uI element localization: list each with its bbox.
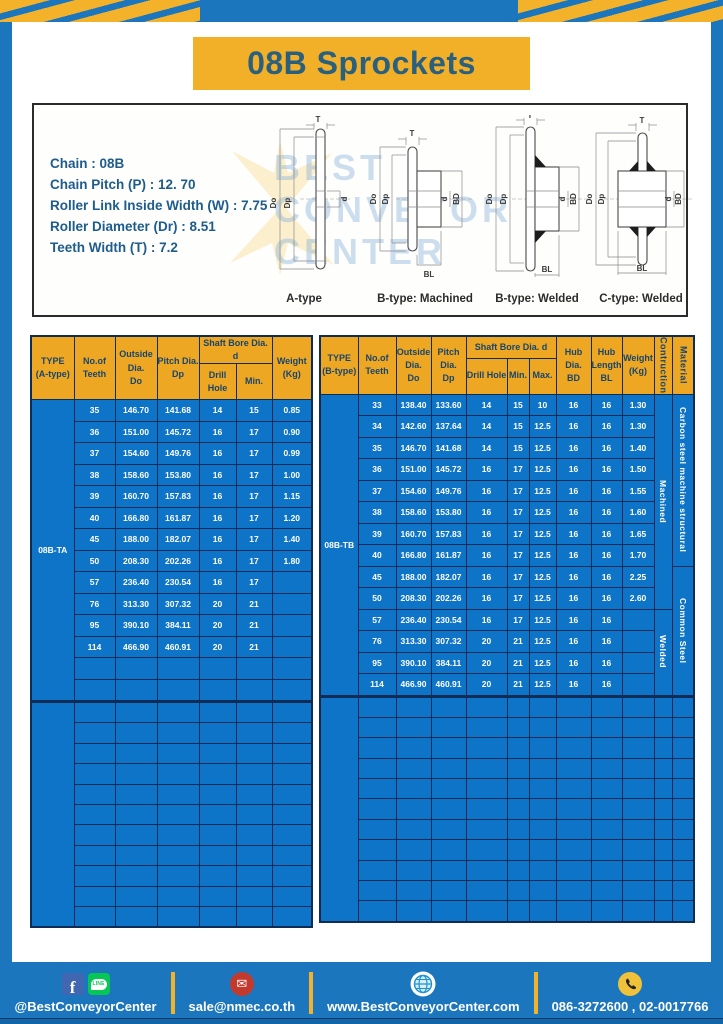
table-cell: 1.50 [622, 459, 654, 481]
table-row [31, 679, 312, 702]
table-cell: 460.91 [431, 674, 466, 697]
table-cell: 313.30 [396, 631, 431, 653]
table-cell [31, 702, 74, 928]
table-cell [396, 860, 431, 880]
table-cell [358, 758, 396, 778]
table-cell: 20 [466, 652, 507, 674]
table-cell [529, 840, 556, 860]
table-cell [157, 658, 199, 680]
table-cell [622, 696, 654, 717]
table-cell: 17 [236, 443, 272, 465]
table-cell [396, 901, 431, 922]
table-cell: 16 [556, 523, 591, 545]
table-cell: 16 [199, 529, 236, 551]
table-cell [672, 696, 694, 717]
table-row: 37154.60149.76161712.516161.55 [320, 480, 694, 502]
table-cell [466, 738, 507, 758]
table-cell [672, 881, 694, 901]
table-cell [74, 658, 115, 680]
globe-icon[interactable] [410, 971, 436, 997]
table-cell: 2.25 [622, 566, 654, 588]
table-cell [591, 860, 622, 880]
table-cell: 10 [529, 394, 556, 416]
table-row-empty [31, 723, 312, 743]
table-cell [529, 860, 556, 880]
table-cell [115, 658, 157, 680]
table-cell [74, 805, 115, 825]
table-row-empty [320, 819, 694, 839]
table-row: 38158.60153.80161712.516161.60 [320, 502, 694, 524]
website-text[interactable]: www.BestConveyorCenter.com [327, 999, 519, 1014]
table-cell [466, 840, 507, 860]
table-cell: 16 [591, 674, 622, 697]
spec-line: Teeth Width (T) : 7.2 [50, 237, 275, 258]
table-cell: 166.80 [396, 545, 431, 567]
table-cell: 166.80 [115, 507, 157, 529]
table-cell: 236.40 [115, 572, 157, 594]
table-cell [591, 840, 622, 860]
table-cell: 33 [358, 394, 396, 416]
table-cell [272, 907, 312, 928]
table-cell: 16 [591, 566, 622, 588]
table-cell [431, 860, 466, 880]
table-cell: 12.5 [529, 588, 556, 610]
a-type-table-header: TYPE (A-type) No.of Teeth Outside Dia. D… [31, 336, 312, 400]
table-row: 50208.30202.2616171.80 [31, 550, 312, 572]
table-row-empty [31, 825, 312, 845]
table-cell [556, 696, 591, 717]
table-cell: 57 [358, 609, 396, 631]
figure-b-type-welded: T Do Dp d BD BL B-type: Welded [482, 115, 592, 307]
svg-text:Do: Do [586, 194, 594, 205]
table-cell [466, 901, 507, 922]
table-cell: 1.30 [622, 416, 654, 438]
facebook-icon[interactable]: f [62, 973, 84, 995]
table-cell: 1.40 [622, 437, 654, 459]
table-row-empty [31, 886, 312, 906]
table-cell [556, 758, 591, 778]
table-cell [272, 764, 312, 784]
table-cell: 146.70 [115, 400, 157, 422]
table-cell [199, 907, 236, 928]
table-cell [507, 738, 529, 758]
table-cell [431, 840, 466, 860]
table-cell: 39 [358, 523, 396, 545]
table-cell: 208.30 [115, 550, 157, 572]
table-cell: Welded [654, 609, 672, 696]
table-cell: 20 [466, 631, 507, 653]
table-cell: 40 [358, 545, 396, 567]
table-cell [622, 901, 654, 922]
catalog-page: 08B Sprockets BEST CONVEYOR CENTER Chain… [0, 0, 723, 1024]
table-row-empty [320, 717, 694, 737]
table-cell: 390.10 [396, 652, 431, 674]
table-cell: 17 [507, 502, 529, 524]
figure-caption: A-type [286, 293, 322, 307]
table-cell: 21 [507, 631, 529, 653]
table-cell: 16 [591, 480, 622, 502]
table-cell [431, 799, 466, 819]
table-cell: 16 [556, 416, 591, 438]
table-cell [74, 886, 115, 906]
table-cell [591, 901, 622, 922]
line-icon[interactable]: LINE [88, 973, 110, 995]
table-cell: 38 [74, 464, 115, 486]
table-cell: 20 [199, 636, 236, 658]
table-row-empty [31, 845, 312, 865]
svg-text:T: T [316, 115, 321, 124]
table-cell: 16 [556, 566, 591, 588]
footer-divider [309, 972, 313, 1014]
table-cell [396, 799, 431, 819]
table-cell [556, 819, 591, 839]
table-cell: 16 [556, 480, 591, 502]
table-cell [272, 886, 312, 906]
table-cell: 17 [507, 588, 529, 610]
table-cell: 17 [236, 572, 272, 594]
table-cell [115, 764, 157, 784]
email-icon[interactable]: ✉ [230, 972, 254, 996]
table-cell: 1.00 [272, 464, 312, 486]
table-cell: 151.00 [396, 459, 431, 481]
table-cell [272, 723, 312, 743]
table-cell: 16 [591, 652, 622, 674]
table-cell [507, 717, 529, 737]
table-row: 36151.00145.7216170.90 [31, 421, 312, 443]
table-cell [591, 717, 622, 737]
table-cell [320, 696, 358, 922]
table-cell [236, 825, 272, 845]
table-cell [431, 717, 466, 737]
table-cell: 12.5 [529, 652, 556, 674]
table-cell [672, 840, 694, 860]
table-cell: 154.60 [115, 443, 157, 465]
table-cell [74, 907, 115, 928]
table-cell [272, 743, 312, 763]
table-row: 50208.30202.26161712.516162.60 [320, 588, 694, 610]
col-header-drill-hole: Drill Hole [466, 358, 507, 394]
table-cell [358, 717, 396, 737]
a-type-table-body: 08B-TA35146.70141.6814150.8536151.00145.… [31, 400, 312, 928]
table-row-empty [320, 758, 694, 778]
table-cell [396, 717, 431, 737]
table-cell: 35 [358, 437, 396, 459]
table-cell [272, 615, 312, 637]
table-cell [466, 819, 507, 839]
table-cell: 12.5 [529, 459, 556, 481]
table-cell [115, 907, 157, 928]
table-cell [622, 881, 654, 901]
table-cell: 16 [556, 502, 591, 524]
phone-icon[interactable] [618, 972, 642, 996]
col-header-outside-dia: Outside Dia. Do [396, 336, 431, 394]
table-row-empty [320, 881, 694, 901]
table-cell [591, 881, 622, 901]
table-cell [199, 702, 236, 723]
table-cell: 17 [236, 421, 272, 443]
figure-caption: C-type: Welded [599, 293, 683, 307]
svg-text:BD: BD [452, 193, 461, 205]
table-cell [591, 696, 622, 717]
table-cell: 1.55 [622, 480, 654, 502]
table-row: 08B-TA35146.70141.6814150.85 [31, 400, 312, 422]
table-cell [199, 825, 236, 845]
table-cell: 20 [199, 593, 236, 615]
table-cell: 17 [236, 529, 272, 551]
table-cell: 16 [591, 459, 622, 481]
table-cell [272, 636, 312, 658]
table-cell [272, 825, 312, 845]
table-cell: 16 [556, 609, 591, 631]
table-cell [654, 799, 672, 819]
table-cell [115, 723, 157, 743]
table-cell: 202.26 [431, 588, 466, 610]
table-cell [74, 679, 115, 702]
table-cell: 12.5 [529, 523, 556, 545]
table-row-empty [31, 805, 312, 825]
table-cell: 38 [358, 502, 396, 524]
table-row: 08B-TB33138.40133.6014151016161.30Machin… [320, 394, 694, 416]
table-cell: 12.5 [529, 480, 556, 502]
hazard-stripes-right [518, 0, 723, 22]
figure-c-type-welded: T Do Dp d BD BL C-type: Welded [586, 115, 696, 307]
table-cell [236, 702, 272, 723]
table-cell [556, 881, 591, 901]
b-type-welded-drawing: T Do Dp d BD BL [482, 115, 592, 283]
table-cell [431, 696, 466, 717]
table-cell: 16 [591, 437, 622, 459]
col-header-max: Max. [529, 358, 556, 394]
table-cell [431, 881, 466, 901]
table-cell [115, 805, 157, 825]
table-cell: 45 [358, 566, 396, 588]
table-cell [199, 679, 236, 702]
table-cell: 16 [199, 464, 236, 486]
table-cell [236, 679, 272, 702]
table-cell [672, 860, 694, 880]
table-cell: 16 [466, 566, 507, 588]
table-cell: 12.5 [529, 674, 556, 697]
table-cell [466, 881, 507, 901]
table-cell [396, 819, 431, 839]
table-cell: 142.60 [396, 416, 431, 438]
col-header-hub-dia: Hub Dia. BD [556, 336, 591, 394]
table-cell: 1.60 [622, 502, 654, 524]
table-row: 40166.80161.8716171.20 [31, 507, 312, 529]
col-header-drill-hole: Drill Hole [199, 364, 236, 400]
table-cell: 21 [507, 674, 529, 697]
email-text[interactable]: sale@nmec.co.th [189, 999, 296, 1014]
table-cell [507, 840, 529, 860]
table-cell: 12.5 [529, 545, 556, 567]
table-cell [272, 784, 312, 804]
table-cell: 36 [74, 421, 115, 443]
table-cell [507, 758, 529, 778]
col-header-min: Min. [507, 358, 529, 394]
table-cell: 146.70 [396, 437, 431, 459]
col-header-weight: Weight (Kg) [622, 336, 654, 394]
table-cell [396, 696, 431, 717]
social-handle-text[interactable]: @BestConveyorCenter [15, 999, 157, 1014]
table-cell: 39 [74, 486, 115, 508]
table-cell [507, 901, 529, 922]
table-cell: 76 [74, 593, 115, 615]
table-cell: 16 [556, 437, 591, 459]
table-cell [74, 723, 115, 743]
table-cell [157, 805, 199, 825]
table-cell [654, 840, 672, 860]
table-cell [115, 743, 157, 763]
table-cell: 307.32 [157, 593, 199, 615]
table-cell [622, 631, 654, 653]
table-cell [622, 799, 654, 819]
table-cell: 40 [74, 507, 115, 529]
table-cell [622, 819, 654, 839]
table-cell [507, 696, 529, 717]
table-row: 39160.70157.83161712.516161.65 [320, 523, 694, 545]
table-cell: 12.5 [529, 437, 556, 459]
table-cell [236, 845, 272, 865]
table-row-empty [31, 743, 312, 763]
table-row-empty [320, 799, 694, 819]
table-row: 57236.40230.54161712.51616Welded [320, 609, 694, 631]
table-cell [556, 901, 591, 922]
table-cell: 307.32 [431, 631, 466, 653]
table-cell: 161.87 [157, 507, 199, 529]
table-cell: 15 [507, 416, 529, 438]
svg-text:Do: Do [485, 194, 494, 205]
spec-line: Chain Pitch (P) : 12. 70 [50, 174, 275, 195]
table-row-empty [31, 784, 312, 804]
table-cell: 153.80 [157, 464, 199, 486]
table-cell [272, 866, 312, 886]
table-cell [431, 758, 466, 778]
col-header-min: Min. [236, 364, 272, 400]
table-cell: 17 [507, 480, 529, 502]
table-cell: Machined [654, 394, 672, 609]
table-cell: 12.5 [529, 609, 556, 631]
table-cell [466, 717, 507, 737]
table-cell [236, 658, 272, 680]
col-header-type: TYPE (B-type) [320, 336, 358, 394]
figure-b-type-machined: T Do Dp d BD BL B-type: Machined [370, 115, 480, 307]
table-cell [236, 805, 272, 825]
table-cell [654, 860, 672, 880]
table-cell [396, 738, 431, 758]
table-cell [236, 784, 272, 804]
svg-text:BD: BD [674, 193, 683, 205]
table-cell [622, 738, 654, 758]
table-cell: 17 [236, 486, 272, 508]
table-row: 76313.30307.322021 [31, 593, 312, 615]
table-cell [654, 819, 672, 839]
table-cell: 36 [358, 459, 396, 481]
table-cell [199, 866, 236, 886]
spec-line: Roller Diameter (Dr) : 8.51 [50, 216, 275, 237]
table-cell [74, 743, 115, 763]
table-cell [431, 738, 466, 758]
table-cell [157, 907, 199, 928]
table-cell [672, 901, 694, 922]
table-cell: 16 [199, 550, 236, 572]
table-cell [507, 860, 529, 880]
table-cell [115, 679, 157, 702]
table-cell [507, 799, 529, 819]
table-cell [466, 758, 507, 778]
footer-contact-bar: f LINE @BestConveyorCenter ✉ sale@nmec.c… [0, 962, 723, 1024]
table-cell [74, 784, 115, 804]
table-cell [74, 702, 115, 723]
table-cell [236, 907, 272, 928]
col-header-construction: Contruction [654, 336, 672, 394]
table-cell [199, 658, 236, 680]
table-row: 114466.90460.91202112.51616 [320, 674, 694, 697]
b-type-table-body: 08B-TB33138.40133.6014151016161.30Machin… [320, 394, 694, 922]
svg-text:Dp: Dp [283, 198, 292, 209]
spec-line: Roller Link Inside Width (W) : 7.75 [50, 195, 275, 216]
table-cell: 230.54 [157, 572, 199, 594]
table-cell: 37 [358, 480, 396, 502]
table-cell: 14 [466, 416, 507, 438]
table-cell: 0.90 [272, 421, 312, 443]
table-cell [556, 840, 591, 860]
figure-caption: B-type: Machined [377, 293, 473, 307]
table-cell [672, 717, 694, 737]
table-cell [358, 738, 396, 758]
table-cell: 466.90 [396, 674, 431, 697]
table-cell [529, 799, 556, 819]
svg-text:d: d [664, 196, 673, 201]
top-hazard-band [0, 0, 723, 22]
table-cell: 141.68 [157, 400, 199, 422]
table-cell [199, 845, 236, 865]
table-cell [654, 738, 672, 758]
svg-text:d: d [440, 196, 449, 201]
table-cell: 2.60 [622, 588, 654, 610]
table-cell [115, 825, 157, 845]
table-cell [672, 779, 694, 799]
table-cell: 1.80 [272, 550, 312, 572]
table-cell [529, 819, 556, 839]
table-cell: 12.5 [529, 566, 556, 588]
col-header-type: TYPE (A-type) [31, 336, 74, 400]
title-banner: 08B Sprockets [193, 37, 530, 90]
table-cell: 20 [466, 674, 507, 697]
table-cell [556, 779, 591, 799]
table-cell [358, 819, 396, 839]
table-cell: 16 [199, 443, 236, 465]
table-cell: 16 [556, 588, 591, 610]
table-cell [556, 738, 591, 758]
table-cell [272, 845, 312, 865]
table-cell [236, 886, 272, 906]
table-row: 57236.40230.541617 [31, 572, 312, 594]
table-cell: Carbon steel machine structural [672, 394, 694, 566]
table-cell: 16 [556, 652, 591, 674]
table-cell [396, 758, 431, 778]
phone-numbers-text[interactable]: 086-3272600 , 02-0017766 [552, 999, 709, 1014]
svg-text:T: T [640, 116, 645, 125]
table-cell [622, 840, 654, 860]
footer-divider [171, 972, 175, 1014]
table-cell: 1.15 [272, 486, 312, 508]
table-cell [199, 723, 236, 743]
table-cell: 08B-TA [31, 400, 74, 702]
svg-text:BL: BL [424, 270, 435, 279]
table-cell: 12.5 [529, 502, 556, 524]
page-title: 08B Sprockets [247, 45, 476, 82]
table-cell [466, 860, 507, 880]
